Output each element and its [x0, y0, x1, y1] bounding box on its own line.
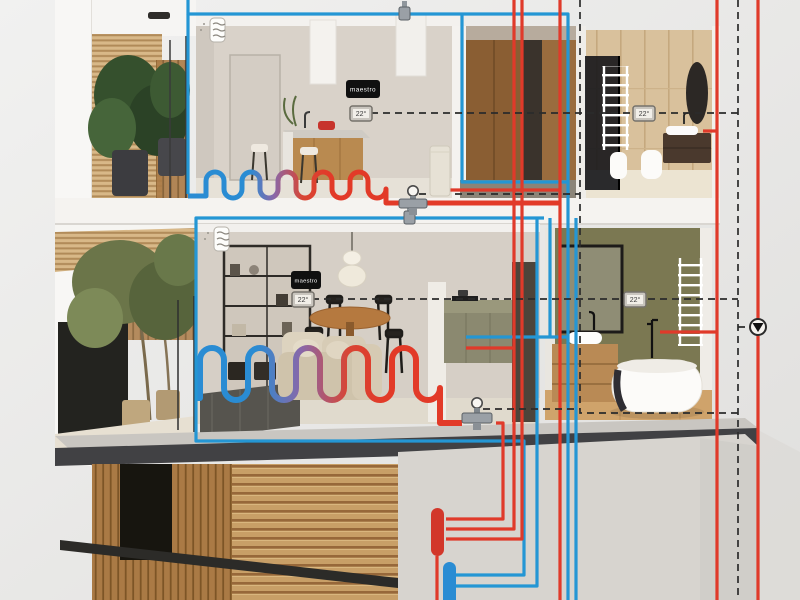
display-brand-label: maestro [294, 279, 317, 285]
thermostat-value: 22° [630, 296, 641, 304]
heat-pump-unit [430, 146, 450, 196]
middle-floor [196, 224, 712, 438]
freestanding-bathtub [610, 359, 704, 419]
display-brand-label: maestro [350, 87, 376, 94]
building-shadow [758, 430, 800, 600]
plant-pot [158, 138, 186, 176]
smart-display-top[interactable]: maestro [346, 80, 380, 98]
recessed-balcony [120, 464, 172, 560]
ground-level [55, 418, 758, 600]
vessel-sink [568, 332, 602, 344]
top-balcony [88, 0, 196, 200]
thermostat-value: 22° [639, 110, 650, 118]
bidet [610, 152, 627, 179]
pantry-wall [512, 262, 538, 422]
cooking-pot [458, 290, 468, 296]
wall-hung-toilet [641, 150, 662, 179]
hot-manifold [431, 508, 444, 556]
tall-cabinet [310, 20, 336, 84]
middle-bathroom [545, 228, 712, 420]
thermostat-top-kitchen[interactable]: 22° [350, 106, 372, 121]
valve-actuator-icon [408, 186, 418, 196]
top-corridor [452, 26, 586, 198]
cutaway-scene: maestro 22° 22° maestro 22° 22° [0, 0, 800, 600]
tree-pot [156, 390, 180, 420]
oval-mirror [686, 62, 708, 124]
valve-actuator-icon [472, 398, 482, 408]
thermostat-value: 22° [356, 110, 367, 118]
ceiling-vent-slot [148, 12, 170, 19]
thermostat-mid-bathroom[interactable]: 22° [624, 292, 646, 307]
towel-radiator [602, 66, 629, 150]
circulation-pump[interactable] [750, 319, 766, 335]
red-pot [318, 121, 335, 130]
interior-door [230, 55, 280, 180]
washbasin [666, 126, 698, 135]
ventilation-unit-icon [214, 227, 229, 251]
building-heating-cutaway: maestro 22° 22° maestro 22° 22° [0, 0, 800, 600]
thermostat-top-bathroom[interactable]: 22° [633, 106, 655, 121]
smart-display-mid[interactable]: maestro [291, 271, 321, 289]
extractor-column [396, 14, 426, 76]
ventilation-unit-icon [210, 18, 225, 42]
plant-pot [112, 150, 148, 196]
thermostat-value: 22° [298, 296, 309, 304]
thermostat-mid-living[interactable]: 22° [292, 292, 314, 307]
